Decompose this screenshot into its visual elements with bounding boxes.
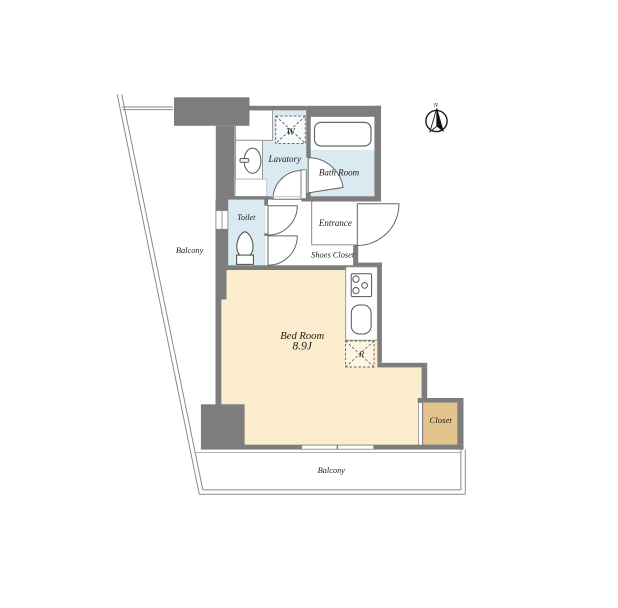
svg-text:Toilet: Toilet <box>237 213 256 222</box>
svg-text:Lavatory: Lavatory <box>267 154 301 164</box>
svg-text:N: N <box>433 102 439 109</box>
svg-text:Balcony: Balcony <box>318 466 346 475</box>
svg-text:R: R <box>358 349 365 359</box>
svg-text:Entrance: Entrance <box>318 218 352 228</box>
svg-text:Closet: Closet <box>429 415 452 425</box>
svg-text:Shoes Closet: Shoes Closet <box>311 251 355 260</box>
svg-text:8.9J: 8.9J <box>293 341 313 353</box>
svg-text:Balcony: Balcony <box>176 246 204 255</box>
svg-text:Bath Room: Bath Room <box>319 167 360 177</box>
